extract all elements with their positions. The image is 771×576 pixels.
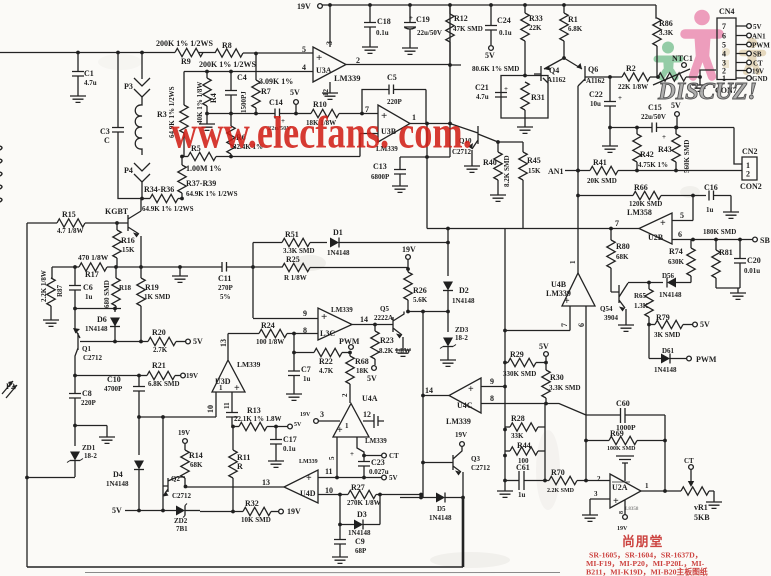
svg-text:DISCUZ!: DISCUZ! xyxy=(657,78,757,105)
svg-text:NTC1: NTC1 xyxy=(672,54,693,63)
svg-text:C6: C6 xyxy=(83,283,93,292)
svg-text:C2712: C2712 xyxy=(83,354,103,362)
svg-text:3.09K 1%: 3.09K 1% xyxy=(259,77,293,86)
svg-text:14: 14 xyxy=(360,315,368,324)
svg-text:5V: 5V xyxy=(290,88,300,97)
svg-text:20K SMD: 20K SMD xyxy=(587,177,617,185)
svg-text:CN2: CN2 xyxy=(742,147,758,156)
svg-text:+: + xyxy=(316,52,322,64)
svg-text:LM339: LM339 xyxy=(334,73,360,83)
svg-text:ZD3: ZD3 xyxy=(455,326,469,334)
svg-text:R25: R25 xyxy=(286,255,300,264)
svg-text:LM339: LM339 xyxy=(365,437,387,445)
svg-text:19V: 19V xyxy=(178,429,190,437)
svg-text:8.2K SMD: 8.2K SMD xyxy=(503,156,511,188)
svg-text:1u: 1u xyxy=(303,375,311,383)
svg-text:6800P: 6800P xyxy=(371,173,390,181)
svg-text:R34-R36: R34-R36 xyxy=(144,185,174,194)
svg-text:R31: R31 xyxy=(531,93,545,102)
svg-text:33K: 33K xyxy=(511,432,524,440)
svg-text:200K 1% 1/2WS: 200K 1% 1/2WS xyxy=(199,60,256,69)
svg-text:C61: C61 xyxy=(516,463,530,472)
svg-text:6.8K: 6.8K xyxy=(568,25,583,33)
svg-text:尚朋堂: 尚朋堂 xyxy=(622,534,663,549)
svg-text:4700P: 4700P xyxy=(104,385,123,393)
svg-text:U4B: U4B xyxy=(551,280,567,289)
svg-text:100 1/8W: 100 1/8W xyxy=(256,338,284,346)
svg-text:R27: R27 xyxy=(351,483,365,492)
svg-text:15K: 15K xyxy=(528,167,541,175)
svg-text:L3C: L3C xyxy=(320,329,335,338)
svg-text:R1: R1 xyxy=(568,15,578,24)
svg-text:R41: R41 xyxy=(593,158,607,167)
svg-text:AN1: AN1 xyxy=(548,167,564,176)
svg-text:4: 4 xyxy=(302,63,306,72)
svg-text:270K 1/8W: 270K 1/8W xyxy=(347,499,381,507)
svg-text:5V: 5V xyxy=(485,51,495,60)
svg-text:U4C: U4C xyxy=(457,401,473,410)
svg-text:LM339: LM339 xyxy=(299,459,318,465)
svg-text:B211，MI-K19D，MI-B20主板图纸: B211，MI-K19D，MI-B20主板图纸 xyxy=(586,567,708,576)
svg-text:R21: R21 xyxy=(152,361,166,370)
svg-text:7: 7 xyxy=(722,22,726,31)
svg-text:Q3: Q3 xyxy=(471,455,480,463)
svg-text:10u: 10u xyxy=(590,100,601,108)
svg-text:U2A: U2A xyxy=(612,483,628,492)
svg-text:Q2: Q2 xyxy=(171,475,180,483)
svg-text:+: + xyxy=(409,14,413,22)
svg-text:2: 2 xyxy=(356,56,360,65)
svg-text:C23: C23 xyxy=(371,458,385,467)
svg-text:+: + xyxy=(564,296,570,307)
svg-text:C9: C9 xyxy=(355,537,365,546)
svg-text:CT: CT xyxy=(389,452,399,460)
svg-text:19V: 19V xyxy=(455,431,467,439)
svg-text:4.7K: 4.7K xyxy=(319,367,334,375)
svg-text:C60: C60 xyxy=(616,399,630,408)
svg-text:R70: R70 xyxy=(551,468,565,477)
svg-text:9: 9 xyxy=(490,377,494,386)
svg-text:1N4148: 1N4148 xyxy=(654,366,677,374)
svg-text:4: 4 xyxy=(722,50,726,59)
svg-text:P2: P2 xyxy=(6,382,15,391)
svg-text:R66: R66 xyxy=(634,183,648,192)
svg-text:6: 6 xyxy=(577,323,586,327)
svg-text:2.2K SMD: 2.2K SMD xyxy=(547,488,575,494)
svg-text:Q1: Q1 xyxy=(82,345,91,353)
svg-text:4.7 1/8W: 4.7 1/8W xyxy=(57,227,83,235)
svg-text:www.elecfans. com.: www.elecfans. com. xyxy=(171,108,472,159)
svg-text:R86: R86 xyxy=(659,19,673,28)
svg-text:220P: 220P xyxy=(81,399,97,407)
svg-text:0.027u: 0.027u xyxy=(369,468,389,476)
svg-text:1: 1 xyxy=(645,482,649,490)
svg-text:5V: 5V xyxy=(193,337,203,346)
svg-text:R43: R43 xyxy=(658,145,672,154)
svg-text:1.00M 1%: 1.00M 1% xyxy=(186,164,222,173)
svg-text:R40: R40 xyxy=(483,158,497,167)
svg-text:11: 11 xyxy=(325,467,333,476)
svg-text:470 1/8W: 470 1/8W xyxy=(78,253,109,262)
svg-text:630K: 630K xyxy=(668,258,685,266)
svg-text:R42: R42 xyxy=(640,150,654,159)
svg-text:PWM: PWM xyxy=(752,42,770,50)
svg-text:C11: C11 xyxy=(218,274,231,283)
svg-text:22K: 22K xyxy=(529,24,542,32)
svg-text:3.3K: 3.3K xyxy=(659,29,674,37)
svg-text:R68: R68 xyxy=(355,357,369,366)
svg-text:+: + xyxy=(618,94,622,102)
svg-text:R22: R22 xyxy=(319,357,333,366)
svg-text:22u/50V: 22u/50V xyxy=(417,29,442,37)
svg-text:D56: D56 xyxy=(662,272,675,280)
svg-text:5.6K: 5.6K xyxy=(413,296,428,304)
svg-text:120K SMD: 120K SMD xyxy=(629,200,662,208)
svg-text:1K SMD: 1K SMD xyxy=(144,293,170,301)
svg-text:10: 10 xyxy=(206,405,215,413)
svg-text:3: 3 xyxy=(320,410,324,419)
svg-text:R8: R8 xyxy=(222,41,232,50)
svg-text:C4: C4 xyxy=(237,73,247,82)
svg-text:4.7u: 4.7u xyxy=(476,93,489,101)
svg-text:5V: 5V xyxy=(112,506,122,515)
svg-text:270P: 270P xyxy=(218,284,234,292)
svg-text:R79: R79 xyxy=(656,313,670,322)
svg-text:8: 8 xyxy=(490,394,494,403)
svg-text:KGBT: KGBT xyxy=(105,207,129,216)
svg-text:vR1: vR1 xyxy=(694,503,708,512)
svg-text:R24: R24 xyxy=(261,321,275,330)
svg-text:68P: 68P xyxy=(355,547,367,555)
svg-text:R81: R81 xyxy=(719,248,733,257)
svg-text:10K SMD: 10K SMD xyxy=(241,516,271,524)
svg-text:1u: 1u xyxy=(706,206,714,214)
svg-text:+: + xyxy=(321,311,327,323)
svg-text:4.7u: 4.7u xyxy=(84,79,97,87)
svg-text:R23: R23 xyxy=(380,336,394,345)
svg-text:C13: C13 xyxy=(373,162,387,171)
svg-text:5: 5 xyxy=(302,45,306,54)
svg-text:R30: R30 xyxy=(550,373,564,382)
svg-text:5: 5 xyxy=(722,41,726,50)
svg-text:C18: C18 xyxy=(377,17,391,26)
svg-text:C: C xyxy=(104,136,110,145)
svg-text:U4A: U4A xyxy=(362,394,378,403)
svg-text:R2: R2 xyxy=(626,64,636,73)
svg-text:2.7K: 2.7K xyxy=(153,346,168,354)
svg-text:7: 7 xyxy=(560,323,569,327)
svg-text:U4D: U4D xyxy=(300,489,316,498)
svg-text:5V: 5V xyxy=(367,374,377,383)
svg-text:R17: R17 xyxy=(85,270,99,279)
svg-text:+: + xyxy=(613,496,619,507)
svg-text:14: 14 xyxy=(425,386,433,395)
svg-text:1.3K: 1.3K xyxy=(634,302,649,310)
svg-text:1u: 1u xyxy=(518,491,526,499)
svg-text:22u/50V: 22u/50V xyxy=(641,113,666,121)
svg-text:1: 1 xyxy=(219,384,223,392)
svg-text:R 1/8W: R 1/8W xyxy=(284,274,307,282)
svg-text:5V: 5V xyxy=(539,342,549,351)
svg-text:AN1: AN1 xyxy=(752,33,766,41)
svg-text:ZD1: ZD1 xyxy=(82,444,96,452)
svg-text:R29: R29 xyxy=(510,350,524,359)
svg-text:2222A: 2222A xyxy=(374,314,393,322)
svg-text:+: + xyxy=(234,383,240,394)
svg-text:Q6: Q6 xyxy=(588,65,598,74)
svg-text:SB: SB xyxy=(760,236,770,245)
svg-text:13: 13 xyxy=(219,339,228,347)
svg-text:Q5: Q5 xyxy=(380,305,389,313)
svg-text:C19: C19 xyxy=(416,15,430,24)
svg-text:R19: R19 xyxy=(145,283,159,292)
svg-text:R45: R45 xyxy=(527,156,541,165)
svg-text:R87: R87 xyxy=(56,284,64,297)
svg-text:L8358: L8358 xyxy=(625,507,639,512)
svg-text:64.9K 1% 1/2WS: 64.9K 1% 1/2WS xyxy=(186,190,238,198)
svg-text:U3A: U3A xyxy=(316,66,332,75)
svg-text:1N4148: 1N4148 xyxy=(85,325,108,333)
svg-text:R20: R20 xyxy=(152,328,166,337)
svg-text:200K 1% 1/2WS: 200K 1% 1/2WS xyxy=(156,39,213,48)
svg-text:C20: C20 xyxy=(747,256,761,265)
svg-text:R69: R69 xyxy=(610,429,624,438)
svg-text:A1162: A1162 xyxy=(586,77,605,85)
svg-text:5V: 5V xyxy=(389,474,398,482)
svg-text:1: 1 xyxy=(569,260,577,264)
svg-text:3.3K SMD: 3.3K SMD xyxy=(283,247,315,255)
svg-text:2: 2 xyxy=(341,393,349,397)
svg-text:1N4148: 1N4148 xyxy=(659,291,682,299)
svg-text:0.1u: 0.1u xyxy=(499,29,512,37)
svg-text:R32: R32 xyxy=(245,499,259,508)
svg-text:9: 9 xyxy=(303,309,307,318)
svg-text:CT: CT xyxy=(753,60,763,68)
svg-text:5V: 5V xyxy=(753,23,762,31)
svg-text:1N4148: 1N4148 xyxy=(429,514,452,522)
svg-text:C5: C5 xyxy=(387,73,397,82)
svg-text:R65: R65 xyxy=(634,292,647,300)
svg-text:0.01u: 0.01u xyxy=(744,267,760,275)
svg-text:R44: R44 xyxy=(517,441,531,450)
svg-text:6: 6 xyxy=(722,32,726,41)
svg-text:18-2: 18-2 xyxy=(455,334,468,342)
svg-text:6: 6 xyxy=(678,230,682,239)
svg-text:R15: R15 xyxy=(62,210,76,219)
svg-text:13: 13 xyxy=(262,478,270,487)
svg-text:1N4148: 1N4148 xyxy=(106,480,129,488)
svg-text:3904: 3904 xyxy=(604,314,619,322)
svg-text:R33: R33 xyxy=(529,14,543,23)
svg-text:CN4: CN4 xyxy=(719,7,735,16)
svg-text:11: 11 xyxy=(223,402,231,409)
svg-text:+: + xyxy=(660,218,666,229)
svg-text:R7: R7 xyxy=(261,87,271,96)
svg-text:A1162: A1162 xyxy=(547,76,566,84)
svg-text:R80: R80 xyxy=(616,242,630,251)
svg-text:Q54: Q54 xyxy=(600,305,613,313)
svg-text:68K: 68K xyxy=(190,461,203,469)
svg-text:100K SMD: 100K SMD xyxy=(607,446,636,452)
svg-text:D61: D61 xyxy=(662,347,675,355)
svg-text:P4: P4 xyxy=(124,166,133,175)
svg-text:+: + xyxy=(350,450,354,458)
svg-text:R14: R14 xyxy=(189,451,203,460)
svg-text:+: + xyxy=(662,133,666,141)
svg-text:330K SMD: 330K SMD xyxy=(503,370,536,378)
svg-text:D3: D3 xyxy=(357,510,367,519)
svg-text:U3D: U3D xyxy=(215,377,231,386)
svg-text:15K: 15K xyxy=(122,246,135,254)
svg-text:R4: R4 xyxy=(209,93,218,103)
svg-text:64.9K 1% 1/2WS: 64.9K 1% 1/2WS xyxy=(142,205,194,213)
svg-text:7B1: 7B1 xyxy=(176,525,188,533)
svg-text:Q4: Q4 xyxy=(549,66,559,75)
svg-text:R74: R74 xyxy=(669,247,683,256)
svg-text:R18: R18 xyxy=(119,284,132,292)
svg-text:1N4148: 1N4148 xyxy=(452,297,475,305)
svg-text:D4: D4 xyxy=(113,470,123,479)
svg-text:3K SMD: 3K SMD xyxy=(654,331,680,339)
svg-text:180K SMD: 180K SMD xyxy=(703,228,736,236)
svg-text:LM339: LM339 xyxy=(237,360,261,369)
svg-text:19V: 19V xyxy=(297,2,311,11)
svg-text:R12: R12 xyxy=(454,14,468,23)
svg-text:R16: R16 xyxy=(121,236,135,245)
svg-text:R3: R3 xyxy=(157,110,167,119)
svg-text:19V: 19V xyxy=(186,372,198,380)
svg-text:D5: D5 xyxy=(437,505,446,513)
svg-text:+: + xyxy=(306,473,312,484)
svg-text:680 SMD: 680 SMD xyxy=(103,280,111,308)
svg-text:5V: 5V xyxy=(700,320,710,329)
svg-text:10: 10 xyxy=(325,486,333,495)
svg-text:SB: SB xyxy=(753,51,762,59)
svg-text:C8: C8 xyxy=(82,389,92,398)
svg-text:3.3K SMD: 3.3K SMD xyxy=(549,384,581,392)
svg-text:C24: C24 xyxy=(497,16,511,25)
svg-text:+: + xyxy=(504,85,508,93)
svg-text:8: 8 xyxy=(619,511,625,514)
svg-text:R11: R11 xyxy=(237,453,250,462)
svg-text:0.1u: 0.1u xyxy=(283,445,296,453)
svg-text:R9: R9 xyxy=(181,57,191,66)
svg-text:LM339: LM339 xyxy=(446,417,471,426)
svg-text:5V: 5V xyxy=(294,422,302,428)
svg-text:ZD2: ZD2 xyxy=(174,517,188,525)
svg-text:R: R xyxy=(237,462,243,471)
svg-text:3: 3 xyxy=(594,490,598,498)
svg-text:1: 1 xyxy=(345,422,349,430)
svg-text:80.6K 1% SMD: 80.6K 1% SMD xyxy=(472,65,519,73)
svg-text:C2712: C2712 xyxy=(172,492,192,500)
svg-text:7: 7 xyxy=(615,219,619,228)
svg-text:19V: 19V xyxy=(287,507,301,516)
svg-text:4.75K 1%: 4.75K 1% xyxy=(638,161,668,169)
svg-text:0.1u: 0.1u xyxy=(376,29,389,37)
svg-text:2: 2 xyxy=(746,170,750,179)
svg-text:22K 1/8W: 22K 1/8W xyxy=(618,83,648,91)
svg-text:1N4148: 1N4148 xyxy=(348,529,371,537)
svg-text:3: 3 xyxy=(325,41,334,45)
svg-text:U2B: U2B xyxy=(648,233,664,242)
svg-text:2: 2 xyxy=(597,475,601,483)
svg-text:C1: C1 xyxy=(84,69,94,78)
svg-text:LM339: LM339 xyxy=(331,306,353,314)
svg-text:C16: C16 xyxy=(704,183,718,192)
svg-text:5: 5 xyxy=(680,211,684,220)
svg-text:R26: R26 xyxy=(413,286,427,295)
svg-text:C10: C10 xyxy=(107,375,121,384)
svg-text:R13: R13 xyxy=(247,406,261,415)
svg-text:C22: C22 xyxy=(589,90,603,99)
svg-text:P3: P3 xyxy=(124,82,133,91)
svg-text:LM358: LM358 xyxy=(627,208,652,217)
svg-text:1u: 1u xyxy=(85,293,93,301)
svg-text:47K SMD: 47K SMD xyxy=(453,25,483,33)
svg-text:560K SMD: 560K SMD xyxy=(683,140,691,173)
svg-text:C21: C21 xyxy=(475,83,489,92)
svg-text:CON2: CON2 xyxy=(740,182,762,191)
svg-text:PWM: PWM xyxy=(696,355,717,364)
svg-text:D2: D2 xyxy=(459,286,469,295)
svg-text:12: 12 xyxy=(322,89,330,97)
svg-text:19V: 19V xyxy=(402,245,416,254)
svg-text:R51: R51 xyxy=(285,230,299,239)
svg-text:C7: C7 xyxy=(301,365,311,374)
svg-text:R28: R28 xyxy=(511,414,525,423)
svg-text:D6: D6 xyxy=(97,315,107,324)
svg-text:68K: 68K xyxy=(616,253,629,261)
svg-text:19V: 19V xyxy=(300,412,311,418)
svg-text:C3: C3 xyxy=(100,127,110,136)
svg-text:12: 12 xyxy=(363,410,371,419)
svg-text:+: + xyxy=(337,425,343,436)
svg-text:6.8K SMD: 6.8K SMD xyxy=(148,380,180,388)
svg-text:+: + xyxy=(468,384,474,395)
svg-text:220P: 220P xyxy=(387,98,403,106)
svg-text:1N4148: 1N4148 xyxy=(327,249,350,257)
svg-text:R37-R39: R37-R39 xyxy=(186,179,216,188)
svg-text:2.2K 1/8W: 2.2K 1/8W xyxy=(40,270,48,302)
svg-text:C14: C14 xyxy=(269,98,283,107)
svg-text:C2712: C2712 xyxy=(471,464,491,472)
svg-text:C17: C17 xyxy=(283,435,297,444)
svg-text:5KB: 5KB xyxy=(694,513,710,522)
svg-text:CT: CT xyxy=(684,457,694,465)
svg-text:5: 5 xyxy=(328,456,336,460)
svg-text:5%: 5% xyxy=(220,293,231,301)
svg-text:19V: 19V xyxy=(617,526,628,532)
svg-text:D1: D1 xyxy=(333,228,343,237)
svg-text:18-2: 18-2 xyxy=(84,452,97,460)
